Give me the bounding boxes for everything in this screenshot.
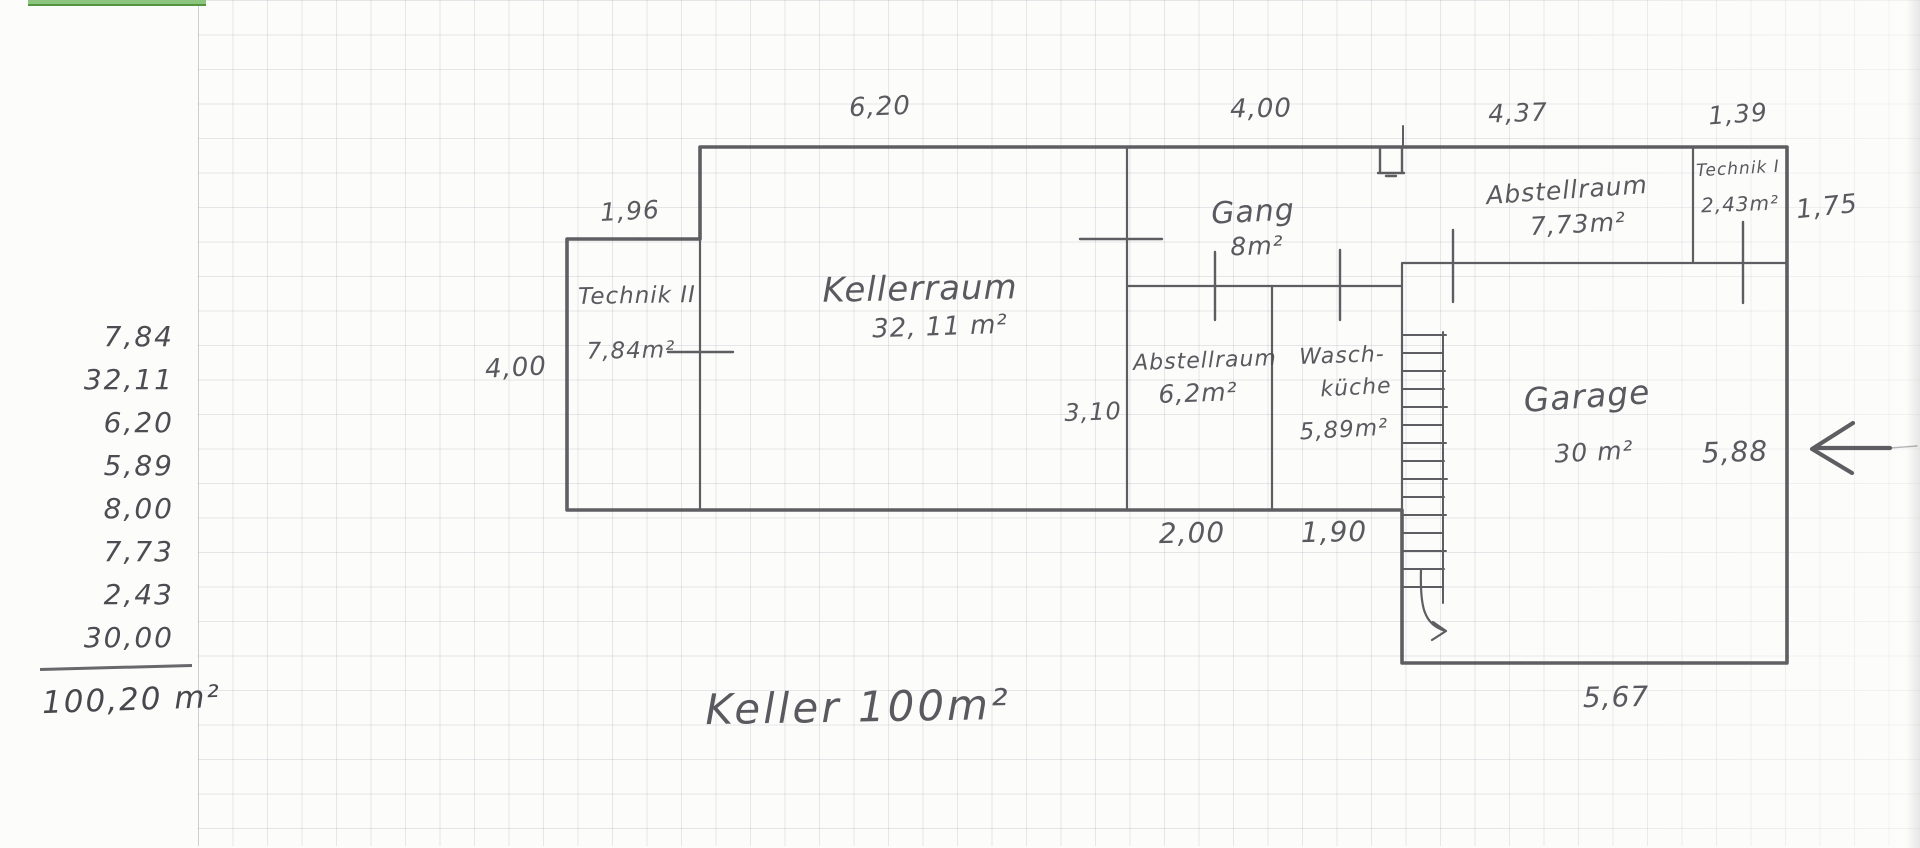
staircase: [1403, 332, 1447, 640]
room-gang-name: Gang: [1210, 192, 1295, 231]
sum-entry: 32,11: [84, 365, 174, 395]
sum-entry: 30,00: [84, 623, 174, 653]
dim-top-4: 1,39: [1707, 97, 1769, 130]
sum-entry: 8,00: [104, 494, 174, 524]
chimney-notch: [1378, 147, 1404, 176]
sum-entry: 5,89: [104, 451, 174, 481]
dim-mid-height: 3,10: [1064, 397, 1122, 427]
room-kellerraum-area: 32, 11 m²: [872, 310, 1009, 345]
dim-annex-height: 4,00: [484, 351, 547, 384]
left-arrow-icon: [1812, 423, 1917, 473]
room-garage-area: 30 m²: [1554, 435, 1635, 468]
room-abstellraum-oben-area: 7,73m²: [1529, 207, 1626, 241]
dim-garage-height: 5,88: [1701, 434, 1768, 469]
sum-total: 100,20 m²: [41, 679, 221, 721]
room-gang-area: 8m²: [1230, 231, 1284, 262]
sum-entry: 2,43: [104, 580, 174, 610]
dim-top-1: 6,20: [849, 91, 912, 123]
room-technik1-area: 2,43m²: [1701, 191, 1780, 218]
room-abstellraum-mitte-area: 6,2m²: [1158, 377, 1238, 409]
room-kellerraum-name: Kellerraum: [822, 267, 1018, 310]
room-technik2-area: 7,84m²: [586, 337, 675, 365]
room-technik2-name: Technik II: [578, 282, 696, 310]
dim-bottom-2: 1,90: [1301, 515, 1368, 549]
plan-title: Keller 100m²: [705, 680, 1011, 734]
scanned-floorplan-page: 7,84 32,11 6,20 5,89 8,00 7,73 2,43 30,0…: [0, 0, 1920, 848]
sum-entry: 7,73: [104, 537, 174, 567]
area-sum-column: 7,84 32,11 6,20 5,89 8,00 7,73 2,43 30,0…: [62, 322, 174, 653]
dim-top-2: 4,00: [1230, 93, 1292, 124]
dim-garage-width: 5,67: [1583, 680, 1650, 714]
dim-top-3: 4,37: [1488, 97, 1549, 128]
room-waschkueche-name-line2: küche: [1320, 374, 1392, 403]
room-abstellraum-mitte-name: Abstellraum: [1133, 346, 1278, 376]
room-waschkueche-area: 5,89m²: [1299, 415, 1389, 446]
room-waschkueche-name-line1: Wasch-: [1299, 342, 1385, 370]
sum-entry: 6,20: [104, 408, 174, 438]
dim-bottom-1: 2,00: [1159, 516, 1226, 550]
sum-entry: 7,84: [104, 322, 174, 352]
dim-annex-width: 1,96: [599, 195, 660, 227]
